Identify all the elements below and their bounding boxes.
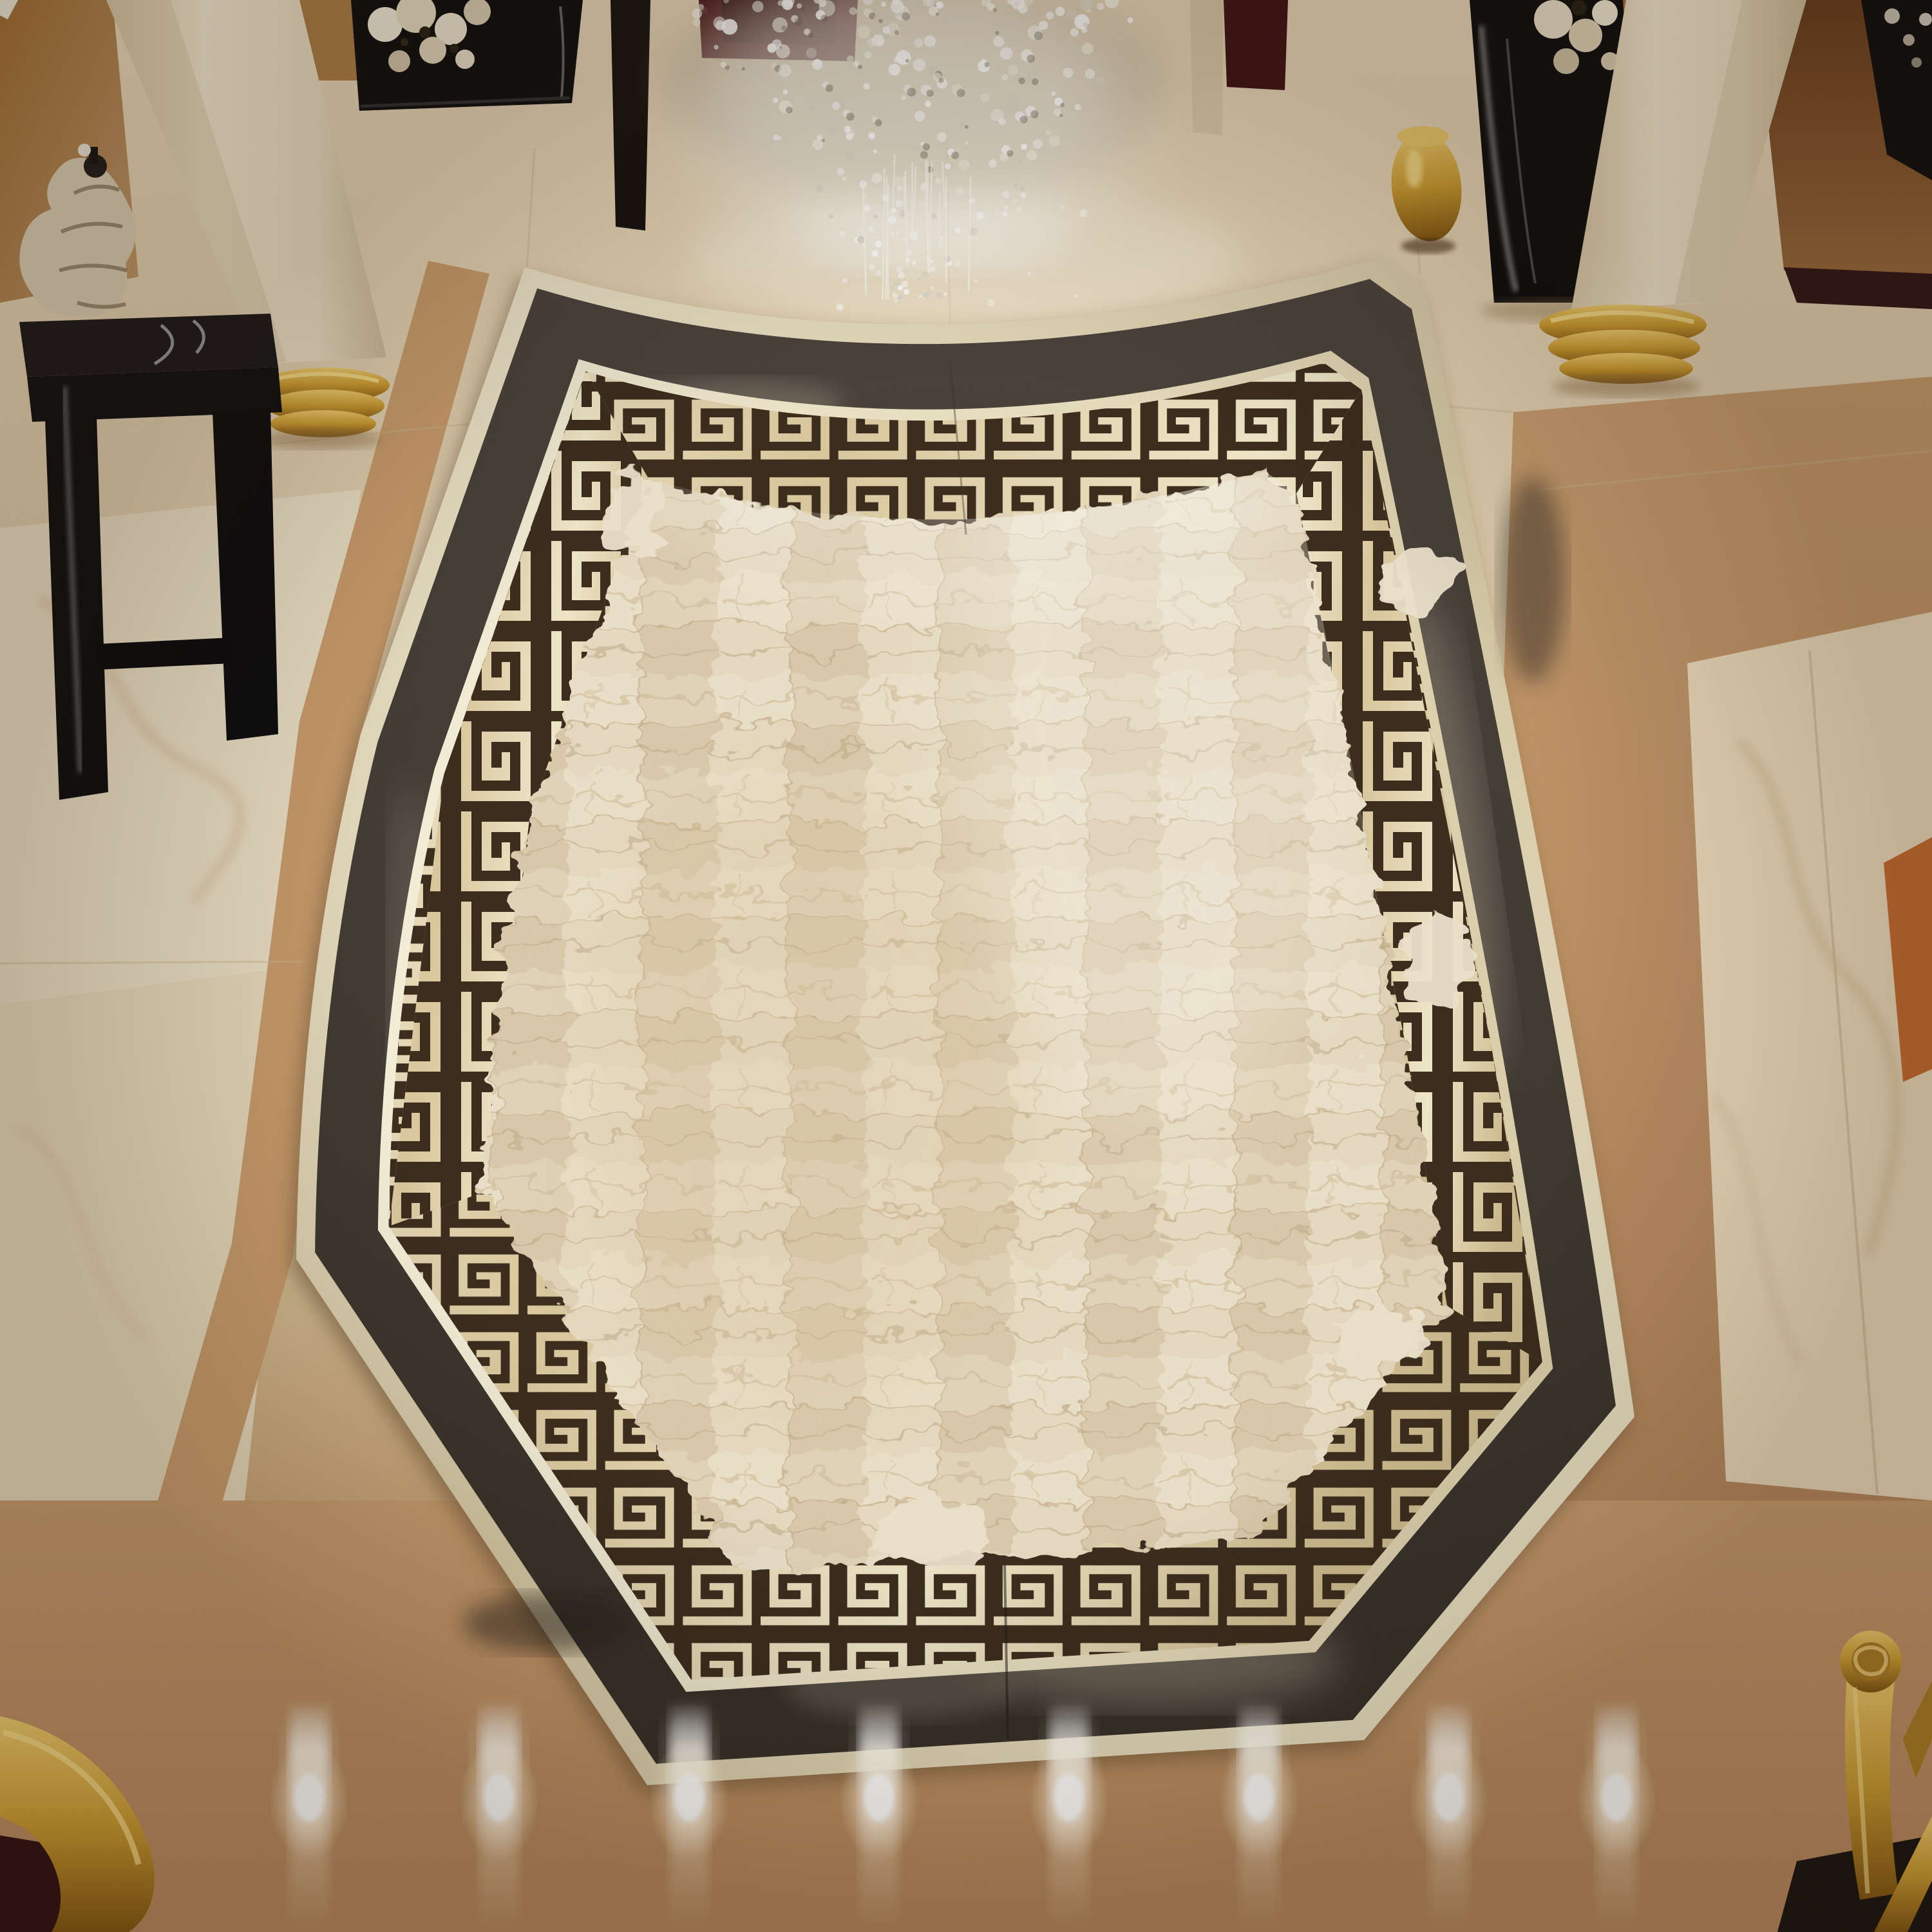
photo-recreation: Luxury marble hallway viewed from above … <box>0 0 1932 1932</box>
hallway-scene <box>0 0 1932 1932</box>
vignette <box>0 0 1932 1932</box>
